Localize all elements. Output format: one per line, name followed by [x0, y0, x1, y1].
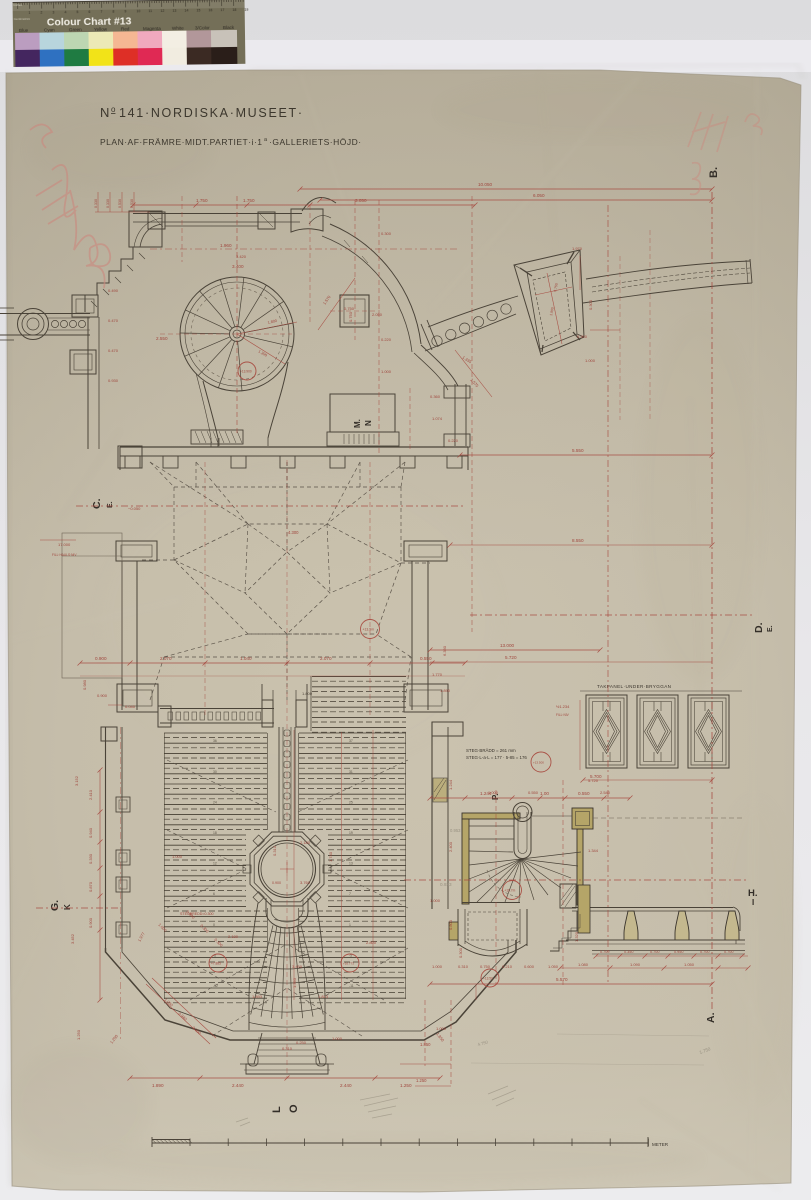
svg-text:1.393: 1.393: [292, 977, 297, 988]
svg-text:30: 30: [213, 770, 217, 774]
svg-text:0.310: 0.310: [272, 845, 277, 856]
svg-text:5: 5: [76, 10, 78, 14]
svg-text:1: 1: [349, 923, 351, 927]
svg-text:1: 1: [28, 11, 30, 15]
svg-text:0.350: 0.350: [624, 950, 634, 954]
svg-text:2.180: 2.180: [300, 840, 311, 845]
svg-text:+13.9m: +13.9m: [363, 628, 375, 632]
svg-text:0.700: 0.700: [600, 950, 610, 954]
svg-text:1.740: 1.740: [328, 851, 333, 862]
svg-text:5.720: 5.720: [505, 655, 517, 660]
svg-text:0.300: 0.300: [588, 299, 593, 310]
svg-text:0.220: 0.220: [448, 438, 459, 443]
svg-text:24: 24: [213, 800, 217, 804]
svg-text:7: 7: [100, 10, 102, 14]
svg-text:0.953: 0.953: [450, 828, 461, 833]
svg-text:2.800: 2.800: [366, 940, 377, 945]
svg-text:10: 10: [136, 9, 140, 13]
svg-text:B.: B.: [708, 167, 720, 178]
svg-text:·GALLERIETS·HÖJD·: ·GALLERIETS·HÖJD·: [269, 137, 362, 147]
svg-text:3/Color: 3/Color: [195, 25, 210, 30]
svg-text:K: K: [63, 904, 72, 910]
svg-text:0.700: 0.700: [700, 950, 710, 954]
svg-text:0.530: 0.530: [118, 199, 122, 208]
svg-text:0: 0: [213, 923, 215, 927]
svg-text:1.074: 1.074: [432, 416, 443, 421]
svg-text:2.410: 2.410: [88, 789, 93, 800]
svg-text:Red: Red: [121, 26, 130, 31]
svg-text:6: 6: [213, 892, 215, 896]
svg-text:1.813: 1.813: [318, 994, 329, 999]
svg-text:1.000: 1.000: [432, 964, 443, 969]
svg-text:1.000: 1.000: [430, 898, 441, 903]
svg-text:+7.885: +7.885: [211, 962, 221, 966]
svg-text:L: L: [271, 1106, 283, 1113]
svg-text:1.090: 1.090: [630, 962, 641, 967]
svg-text:4.300: 4.300: [288, 530, 299, 535]
svg-text:0.310: 0.310: [458, 964, 469, 969]
svg-text:3.420: 3.420: [236, 254, 247, 259]
svg-text:141·NORDISKA·MUSEET·: 141·NORDISKA·MUSEET·: [119, 106, 304, 120]
svg-text:0.550: 0.550: [528, 790, 539, 795]
svg-text:0.900: 0.900: [577, 334, 588, 339]
svg-text:3.152: 3.152: [74, 775, 79, 786]
svg-text:1.970: 1.970: [572, 246, 583, 251]
svg-text:1.250: 1.250: [76, 1029, 81, 1040]
svg-text:+13.500: +13.500: [533, 761, 544, 765]
svg-text:0.900: 0.900: [95, 656, 107, 661]
svg-text:11: 11: [148, 9, 152, 13]
svg-text:Cyan: Cyan: [44, 27, 55, 32]
svg-text:0.930: 0.930: [108, 378, 119, 383]
svg-text:13: 13: [349, 862, 353, 866]
svg-text:FILL·HAULS·NIV: FILL·HAULS·NIV: [52, 553, 77, 557]
svg-text:0.250: 0.250: [296, 1040, 307, 1045]
svg-text:19: 19: [244, 8, 248, 12]
svg-text:A.: A.: [705, 1012, 717, 1023]
svg-text:2.180: 2.180: [228, 934, 239, 939]
svg-text:1.000: 1.000: [172, 854, 183, 859]
svg-text:1.750: 1.750: [243, 198, 255, 203]
svg-text:+13.900: +13.900: [240, 370, 252, 374]
svg-text:2.550: 2.550: [156, 336, 168, 341]
svg-text:Magenta: Magenta: [143, 26, 161, 31]
svg-text:13.000: 13.000: [500, 643, 514, 648]
svg-text:18: 18: [232, 8, 236, 12]
svg-text:N: N: [364, 420, 373, 426]
svg-text:5.720: 5.720: [588, 778, 599, 783]
svg-text:19: 19: [349, 831, 353, 835]
svg-text:8.550: 8.550: [572, 538, 584, 543]
svg-text:6.330: 6.330: [442, 645, 447, 656]
svg-text:0.360: 0.360: [430, 394, 441, 399]
svg-text:FILL·NIV: FILL·NIV: [556, 713, 570, 717]
svg-text:0.470: 0.470: [108, 318, 119, 323]
svg-text:Green: Green: [69, 27, 82, 32]
svg-text:1.040: 1.040: [240, 656, 252, 661]
svg-text:0.220: 0.220: [381, 337, 392, 342]
svg-text:8: 8: [112, 10, 114, 14]
svg-text:METER: METER: [652, 1142, 669, 1147]
svg-text:Centimetres: Centimetres: [14, 17, 31, 21]
svg-text:1.050: 1.050: [548, 964, 559, 969]
svg-text:+16.773: +16.773: [343, 962, 354, 966]
svg-text:0.870: 0.870: [88, 881, 93, 892]
svg-text:0.330: 0.330: [94, 199, 98, 208]
svg-text:18: 18: [213, 831, 217, 835]
svg-text:2.540: 2.540: [600, 790, 611, 795]
svg-text:1.750: 1.750: [196, 198, 208, 203]
svg-text:3.760: 3.760: [300, 880, 311, 885]
svg-text:25: 25: [349, 800, 353, 804]
svg-text:9: 9: [124, 9, 126, 13]
svg-text:1.250: 1.250: [416, 1078, 427, 1083]
svg-text:3: 3: [52, 10, 54, 14]
svg-text:½1.234: ½1.234: [556, 704, 570, 709]
svg-text:1.890: 1.890: [440, 688, 451, 693]
svg-text:D.: D.: [753, 622, 765, 633]
svg-text:0.980: 0.980: [82, 679, 87, 690]
svg-text:3.050: 3.050: [355, 198, 367, 203]
svg-text:Inches: Inches: [14, 3, 23, 7]
svg-text:3.400: 3.400: [232, 264, 244, 269]
svg-text:STEG·L-a·L = 177 · 5-85 = 176: STEG·L-a·L = 177 · 5-85 = 176: [466, 755, 527, 760]
svg-text:PLAN·AF·FRÄMRE·MIDT.PARTIET·i·: PLAN·AF·FRÄMRE·MIDT.PARTIET·i·1: [100, 137, 263, 147]
svg-text:0.750: 0.750: [480, 964, 491, 969]
svg-text:Black: Black: [223, 25, 235, 30]
svg-text:M.: M.: [353, 419, 362, 428]
svg-text:1.960: 1.960: [220, 243, 232, 248]
svg-text:2.050: 2.050: [372, 312, 383, 317]
svg-text:15: 15: [196, 8, 200, 12]
svg-text:E.: E.: [767, 625, 774, 632]
svg-text:1.050: 1.050: [684, 962, 695, 967]
svg-text:17.000: 17.000: [58, 542, 71, 547]
svg-text:1.00: 1.00: [540, 791, 549, 796]
svg-text:0.550: 0.550: [420, 656, 432, 661]
svg-text:5.550: 5.550: [572, 448, 584, 453]
svg-text:1.080: 1.080: [578, 962, 589, 967]
svg-text:1.000: 1.000: [436, 1026, 447, 1031]
svg-text:6: 6: [88, 10, 90, 14]
svg-text:STEGBREDD=0.300: STEGBREDD=0.300: [180, 912, 213, 916]
svg-text:2: 2: [40, 11, 42, 15]
svg-text:C.: C.: [91, 498, 103, 509]
svg-text:0.750: 0.750: [348, 311, 353, 322]
svg-text:1.890: 1.890: [152, 1083, 164, 1088]
svg-text:o: o: [111, 105, 116, 114]
svg-text:0.040: 0.040: [125, 704, 136, 709]
svg-text:1.850: 1.850: [420, 1042, 431, 1047]
svg-text:4: 4: [64, 10, 66, 14]
svg-text:E.: E.: [107, 501, 114, 508]
svg-text:1.244: 1.244: [448, 779, 453, 790]
svg-text:Yellow: Yellow: [94, 27, 108, 32]
svg-text:16: 16: [208, 8, 212, 12]
svg-text:10.050: 10.050: [478, 182, 492, 187]
svg-text:0.310: 0.310: [282, 1046, 293, 1051]
svg-text:1.893: 1.893: [252, 994, 263, 999]
svg-text:2.070: 2.070: [320, 656, 332, 661]
svg-text:0.900: 0.900: [272, 881, 281, 885]
svg-text:0.600: 0.600: [524, 964, 535, 969]
svg-text:Colour Chart #13: Colour Chart #13: [47, 15, 132, 28]
svg-text:6.050: 6.050: [533, 193, 545, 198]
svg-text:+13.50: +13.50: [483, 977, 493, 981]
svg-text:0.550: 0.550: [578, 791, 590, 796]
svg-text:0.490: 0.490: [108, 288, 119, 293]
svg-text:7: 7: [349, 892, 351, 896]
svg-text:1.000: 1.000: [381, 369, 392, 374]
svg-text:3.452: 3.452: [70, 933, 75, 944]
svg-text:0.933: 0.933: [440, 882, 452, 887]
svg-text:N: N: [100, 105, 111, 120]
svg-text:Blue: Blue: [19, 28, 29, 33]
svg-text:1.250: 1.250: [400, 1083, 412, 1088]
svg-text:0.800: 0.800: [448, 919, 453, 930]
svg-text:1.770: 1.770: [432, 672, 443, 677]
svg-text:0.750: 0.750: [344, 306, 355, 311]
svg-text:0.330: 0.330: [106, 199, 110, 208]
svg-text:31: 31: [349, 770, 353, 774]
svg-text:0.300: 0.300: [381, 231, 392, 236]
svg-text:2.440: 2.440: [340, 1083, 352, 1088]
svg-text:0.900: 0.900: [97, 693, 108, 698]
svg-text:-11: -11: [349, 984, 354, 988]
svg-text:O: O: [288, 1104, 300, 1113]
svg-text:0.700: 0.700: [724, 950, 734, 954]
svg-text:13: 13: [172, 9, 176, 13]
svg-text:0.900: 0.900: [88, 917, 93, 928]
svg-text:0.940: 0.940: [88, 827, 93, 838]
svg-text:14: 14: [184, 9, 188, 13]
svg-text:2.070: 2.070: [160, 656, 172, 661]
svg-text:0.700: 0.700: [650, 950, 660, 954]
svg-text:I: I: [752, 898, 754, 907]
svg-text:2.400: 2.400: [448, 841, 453, 852]
svg-text:0.950: 0.950: [674, 950, 684, 954]
svg-text:0.330: 0.330: [88, 853, 93, 864]
svg-text:36: 36: [213, 739, 217, 743]
svg-text:0.210: 0.210: [502, 964, 513, 969]
svg-text:1.344: 1.344: [588, 848, 599, 853]
svg-text:White: White: [172, 26, 184, 31]
svg-text:12: 12: [213, 862, 217, 866]
svg-text:12: 12: [160, 9, 164, 13]
svg-text:1.000: 1.000: [332, 1036, 343, 1041]
svg-text:1.000: 1.000: [585, 358, 596, 363]
svg-text:37: 37: [349, 739, 353, 743]
svg-text:0.530: 0.530: [130, 199, 134, 208]
svg-text:0.300: 0.300: [458, 947, 463, 958]
svg-text:STEG·BRÄDD = 261 mm: STEG·BRÄDD = 261 mm: [466, 748, 516, 753]
svg-text:2.440: 2.440: [232, 1083, 244, 1088]
svg-text:1.000: 1.000: [488, 790, 499, 795]
svg-text:−0.050: −0.050: [128, 506, 141, 511]
svg-text:1.800: 1.800: [302, 691, 313, 696]
svg-text:3.450: 3.450: [292, 964, 303, 969]
svg-text:17: 17: [220, 8, 224, 12]
svg-text:G.: G.: [49, 900, 61, 911]
svg-text:1.320: 1.320: [574, 931, 579, 942]
svg-text:0.470: 0.470: [108, 348, 119, 353]
svg-text:+16.7m: +16.7m: [505, 889, 516, 893]
svg-text:5.570: 5.570: [556, 977, 568, 982]
